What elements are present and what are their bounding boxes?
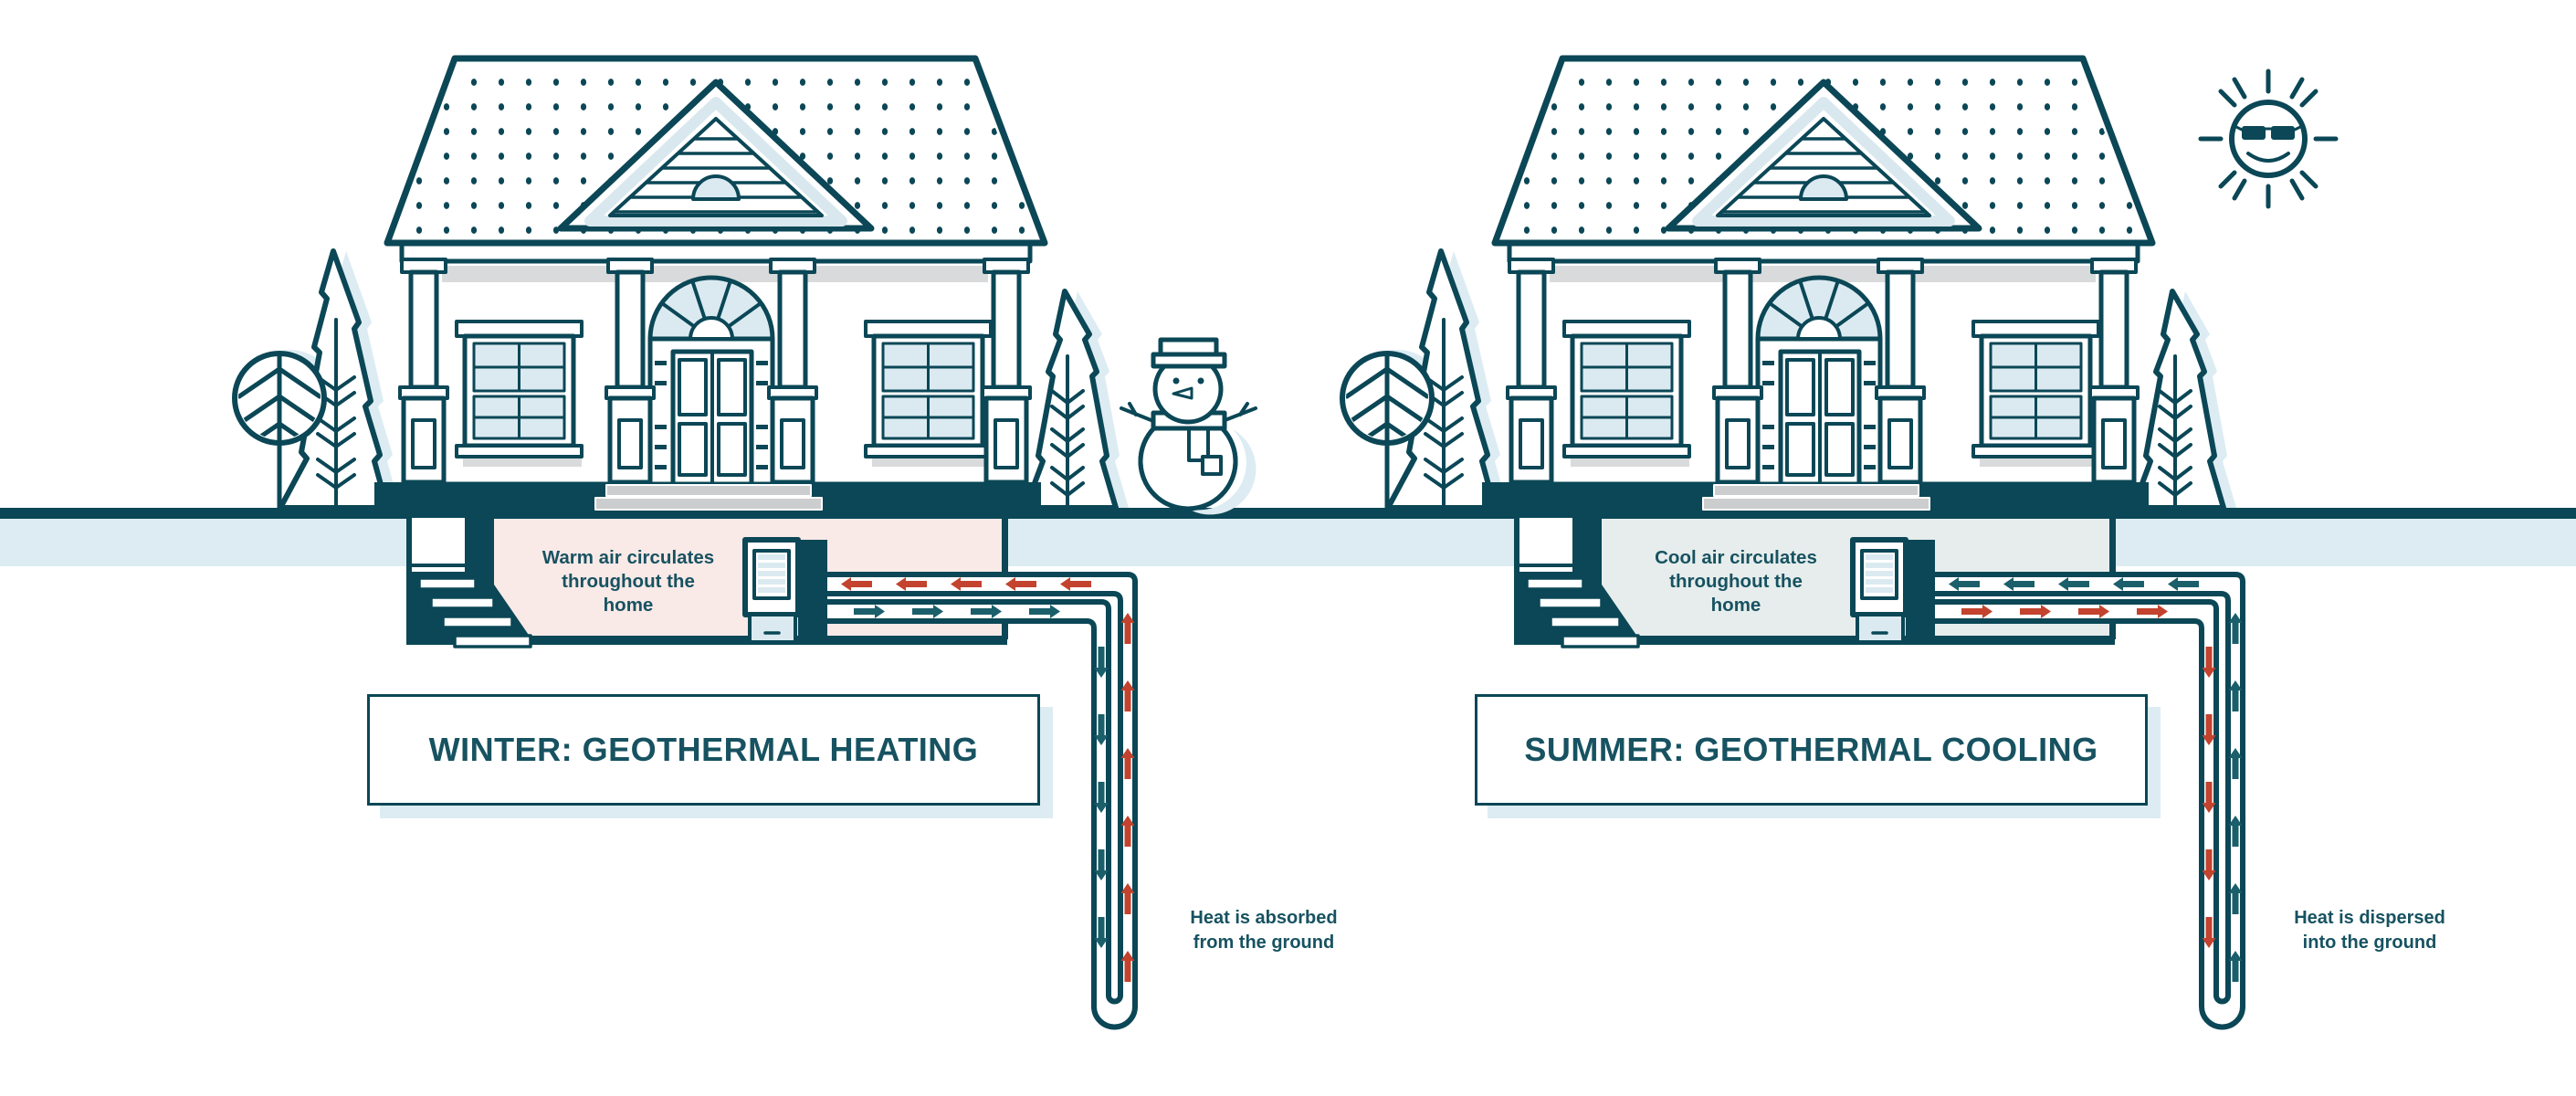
geothermal-infographic: Warm air circulates throughout the home … (0, 0, 2576, 1096)
sun-icon (2201, 71, 2336, 206)
winter-title: WINTER: GEOTHERMAL HEATING (429, 731, 979, 769)
winter-title-box: WINTER: GEOTHERMAL HEATING (367, 694, 1040, 806)
summer-ground-label: Heat is dispersed into the ground (2233, 906, 2507, 955)
summer-basement-label-line1: Cool air circulates (1599, 546, 1873, 570)
summer-title: SUMMER: GEOTHERMAL COOLING (1524, 731, 2098, 769)
winter-ground-label-line1: Heat is absorbed (1127, 906, 1401, 931)
winter-basement-label-line1: Warm air circulates (491, 546, 765, 570)
winter-ground-label: Heat is absorbed from the ground (1127, 906, 1401, 955)
winter-basement-label: Warm air circulates throughout the home (491, 546, 765, 617)
snowman-icon (1121, 340, 1256, 514)
summer-basement-label: Cool air circulates throughout the home (1599, 546, 1873, 617)
summer-ground-label-line1: Heat is dispersed (2233, 906, 2507, 931)
summer-title-box: SUMMER: GEOTHERMAL COOLING (1475, 694, 2148, 806)
summer-basement-label-line2: throughout the (1599, 570, 1873, 594)
summer-ground-label-line2: into the ground (2233, 931, 2507, 955)
winter-basement-label-line3: home (491, 594, 765, 617)
winter-ground-label-line2: from the ground (1127, 931, 1401, 955)
summer-basement-label-line3: home (1599, 594, 1873, 617)
underground-band (0, 519, 2576, 566)
winter-basement-label-line2: throughout the (491, 570, 765, 594)
